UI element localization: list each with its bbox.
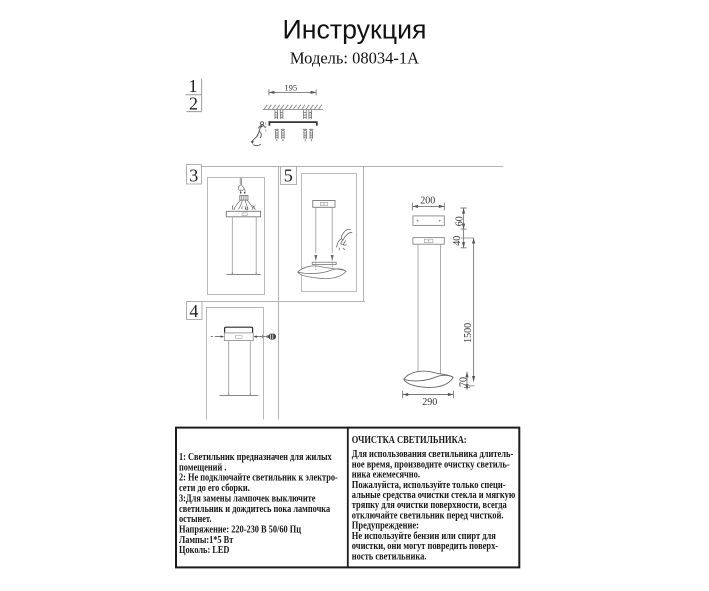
- svg-text:Инструкция: Инструкция: [283, 14, 427, 44]
- svg-text:ность светильника.: ность светильника.: [352, 550, 427, 562]
- svg-text:ОЧИСТКА СВЕТИЛЬНИКА:: ОЧИСТКА СВЕТИЛЬНИКА:: [352, 434, 467, 446]
- svg-text:195: 195: [284, 83, 297, 93]
- svg-text:290: 290: [422, 397, 437, 408]
- svg-text:Цоколь: LED: Цоколь: LED: [179, 544, 229, 556]
- svg-text:40: 40: [452, 236, 463, 246]
- svg-text:5: 5: [284, 166, 293, 186]
- svg-text:1500: 1500: [463, 323, 474, 343]
- svg-text:2: 2: [189, 93, 198, 113]
- svg-text:3: 3: [189, 166, 198, 186]
- svg-text:200: 200: [420, 196, 435, 207]
- svg-text:X: X: [252, 205, 257, 212]
- svg-text:4: 4: [189, 301, 198, 321]
- svg-text:L: L: [232, 205, 236, 212]
- svg-text:Модель: 08034-1A: Модель: 08034-1A: [290, 49, 419, 68]
